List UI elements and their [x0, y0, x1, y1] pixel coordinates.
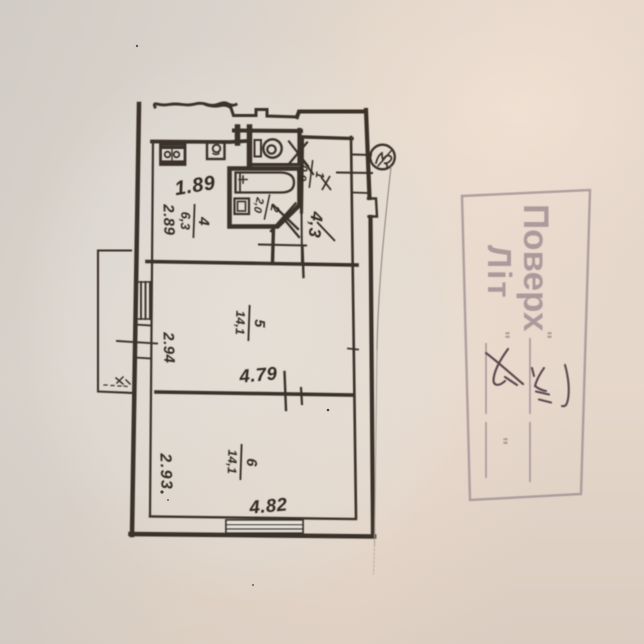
svg-text:14,1: 14,1 — [225, 449, 240, 474]
svg-text:6: 6 — [243, 458, 259, 468]
svg-text:5: 5 — [251, 319, 267, 329]
svg-text:4,3: 4,3 — [304, 210, 326, 240]
svg-text:0,9: 0,9 — [295, 164, 309, 182]
svg-text:2.93: 2.93 — [156, 452, 174, 491]
svg-text:2.89: 2.89 — [159, 203, 177, 236]
svg-text:4.82: 4.82 — [248, 493, 289, 517]
svg-text:14,1: 14,1 — [233, 310, 248, 335]
svg-text:Поверх: Поверх — [516, 204, 555, 332]
svg-text:": " — [536, 331, 555, 339]
svg-text:": " — [492, 437, 511, 445]
svg-text:4.79: 4.79 — [238, 362, 279, 386]
svg-text:6,3: 6,3 — [178, 211, 194, 230]
svg-text:Літ: Літ — [481, 245, 518, 300]
svg-text:": " — [494, 331, 513, 339]
svg-text:2.94: 2.94 — [159, 331, 177, 364]
svg-text:4: 4 — [195, 216, 212, 227]
